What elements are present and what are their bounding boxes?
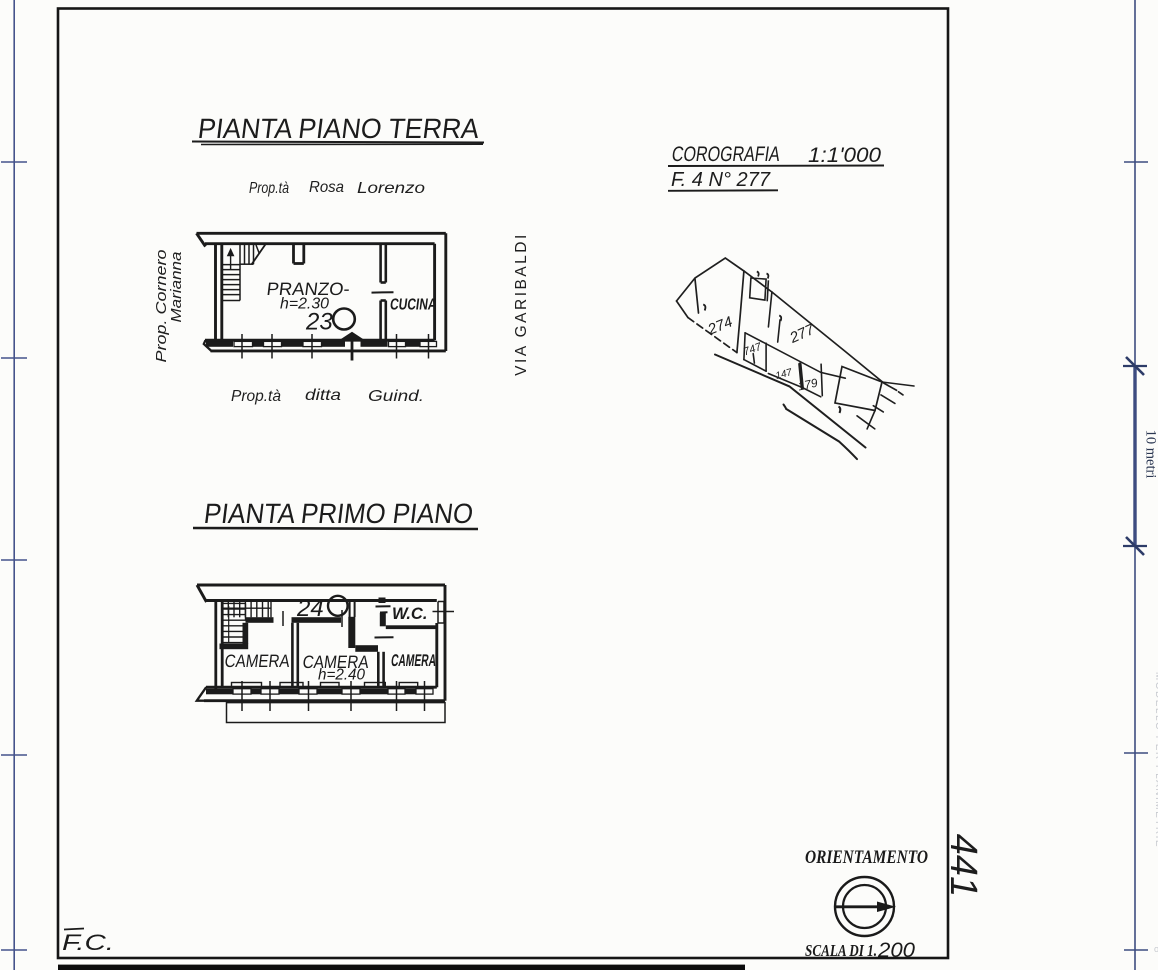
svg-text:Prop.tà: Prop.tà bbox=[249, 180, 289, 197]
svg-text:h=2.40: h=2.40 bbox=[318, 667, 365, 684]
svg-text:441: 441 bbox=[942, 834, 984, 897]
svg-text:24: 24 bbox=[296, 595, 324, 622]
svg-text:VIA GARIBALDI: VIA GARIBALDI bbox=[513, 232, 530, 376]
svg-text:CAMERA: CAMERA bbox=[390, 651, 437, 670]
svg-text:W.C.: W.C. bbox=[392, 605, 427, 623]
svg-text:Marianna: Marianna bbox=[169, 252, 185, 323]
svg-text:1:1'000: 1:1'000 bbox=[808, 144, 881, 167]
svg-text:Prop.tà: Prop.tà bbox=[231, 388, 281, 405]
svg-text:PIANTA PRIMO PIANO: PIANTA PRIMO PIANO bbox=[202, 498, 475, 529]
svg-text:23: 23 bbox=[305, 309, 333, 336]
svg-text:CAMERA: CAMERA bbox=[224, 651, 291, 671]
svg-text:MODELLO PER PLANIMETRIE: MODELLO PER PLANIMETRIE bbox=[1153, 672, 1158, 848]
svg-text:COROGRAFIA: COROGRAFIA bbox=[670, 143, 782, 166]
svg-text:PIANTA PIANO TERRA: PIANTA PIANO TERRA bbox=[196, 113, 481, 144]
svg-text:147: 147 bbox=[774, 367, 793, 382]
svg-text:10 metri: 10 metri bbox=[1143, 430, 1158, 479]
svg-text:274: 274 bbox=[705, 313, 736, 339]
svg-text:Lorenzo: Lorenzo bbox=[357, 180, 425, 197]
svg-text:ORIENTAMENTO: ORIENTAMENTO bbox=[805, 847, 928, 868]
svg-text:Guind.: Guind. bbox=[368, 388, 424, 405]
svg-text:Rosa: Rosa bbox=[309, 179, 344, 196]
svg-text:o: o bbox=[1154, 944, 1158, 954]
svg-text:179: 179 bbox=[796, 376, 819, 394]
svg-text:SCALA DI 1.: SCALA DI 1. bbox=[805, 941, 877, 960]
svg-text:CUCINA: CUCINA bbox=[389, 296, 438, 314]
svg-text:200: 200 bbox=[877, 939, 915, 962]
svg-text:ditta: ditta bbox=[305, 387, 341, 404]
svg-text:F.C.: F.C. bbox=[62, 930, 114, 955]
svg-text:Prop. Cornero: Prop. Cornero bbox=[154, 250, 170, 363]
svg-text:F. 4 N° 277: F. 4 N° 277 bbox=[671, 169, 771, 191]
